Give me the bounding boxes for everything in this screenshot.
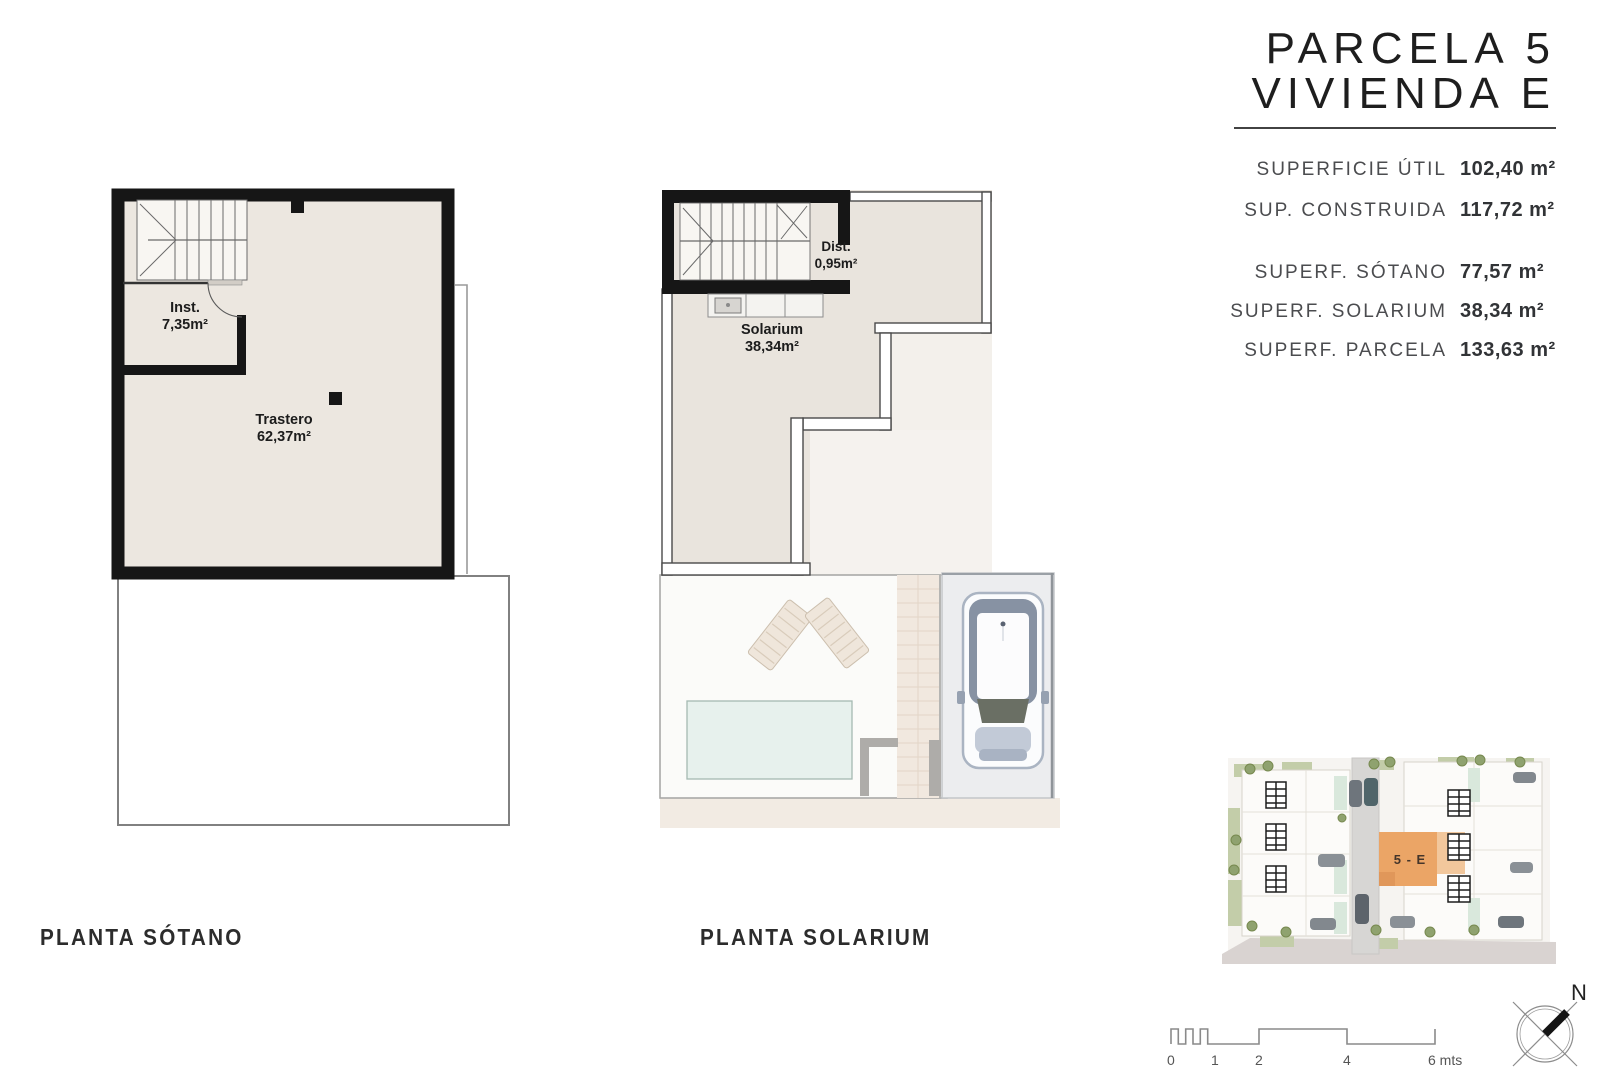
room-label-dist: Dist. 0,95m² — [798, 238, 874, 272]
north-needle — [1545, 1012, 1567, 1034]
scale-tick: 4 — [1343, 1052, 1351, 1068]
north-label: N — [1571, 980, 1587, 1005]
spec-row: SUPERF. PARCELA 133,63 m² — [1244, 339, 1560, 362]
solarium-floor-plan — [655, 185, 1075, 835]
pool — [687, 701, 852, 779]
north-compass-icon: N — [1495, 972, 1600, 1072]
spec-label: SUPERF. SÓTANO — [1255, 262, 1447, 284]
parcel-boundary-outline — [117, 575, 510, 826]
spec-row: SUP. CONSTRUIDA 117,72 m² — [1244, 199, 1560, 222]
scale-tick: 6 mts — [1428, 1052, 1462, 1068]
spec-row: SUPERF. SÓTANO 77,57 m² — [1255, 261, 1560, 284]
title-block: PARCELA 5 VIVIENDA E — [1234, 26, 1556, 129]
room-label-inst: Inst. 7,35m² — [133, 300, 237, 334]
spec-value: 102,40 m² — [1460, 158, 1560, 181]
page-title-line2: VIVIENDA E — [1234, 71, 1556, 116]
street-strip — [660, 798, 1060, 828]
basement-stairs-icon — [137, 200, 247, 280]
counter-sink-icon — [708, 294, 823, 317]
scale-tick: 2 — [1255, 1052, 1263, 1068]
scale-tick: 0 — [1167, 1052, 1175, 1068]
highlight-unit-label: 5 - E — [1394, 852, 1426, 867]
caption-planta-sotano: PLANTA SÓTANO — [40, 924, 244, 951]
scale-bar-line — [1171, 1029, 1435, 1044]
site-plan: 5 - E — [1222, 752, 1556, 966]
plan-sheet: PARCELA 5 VIVIENDA E SUPERFICIE ÚTIL 102… — [0, 0, 1600, 1074]
basement-floor-plan — [110, 186, 470, 588]
column — [329, 392, 342, 405]
car-icon — [957, 593, 1049, 768]
spec-label: SUPERF. PARCELA — [1244, 340, 1447, 362]
spec-value: 117,72 m² — [1460, 199, 1560, 222]
caption-planta-solarium: PLANTA SOLARIUM — [700, 924, 932, 951]
spec-value: 77,57 m² — [1460, 261, 1560, 284]
spec-value: 38,34 m² — [1460, 300, 1560, 323]
spec-label: SUPERFICIE ÚTIL — [1257, 159, 1447, 181]
title-underline — [1234, 127, 1556, 129]
spec-value: 133,63 m² — [1460, 339, 1560, 362]
spec-label: SUPERF. SOLARIUM — [1230, 301, 1447, 323]
scale-tick: 1 — [1211, 1052, 1219, 1068]
spec-label: SUP. CONSTRUIDA — [1244, 200, 1447, 222]
column — [291, 200, 304, 213]
spec-row: SUPERFICIE ÚTIL 102,40 m² — [1257, 158, 1560, 181]
room-label-solarium: Solarium 38,34m² — [705, 322, 839, 356]
solarium-stairs-icon — [680, 203, 810, 280]
scale-bar: 0 1 2 4 6 mts — [1138, 1012, 1478, 1072]
room-label-trastero: Trastero 62,37m² — [212, 412, 356, 446]
spec-row: SUPERF. SOLARIUM 38,34 m² — [1230, 300, 1560, 323]
page-title-line1: PARCELA 5 — [1234, 26, 1556, 71]
